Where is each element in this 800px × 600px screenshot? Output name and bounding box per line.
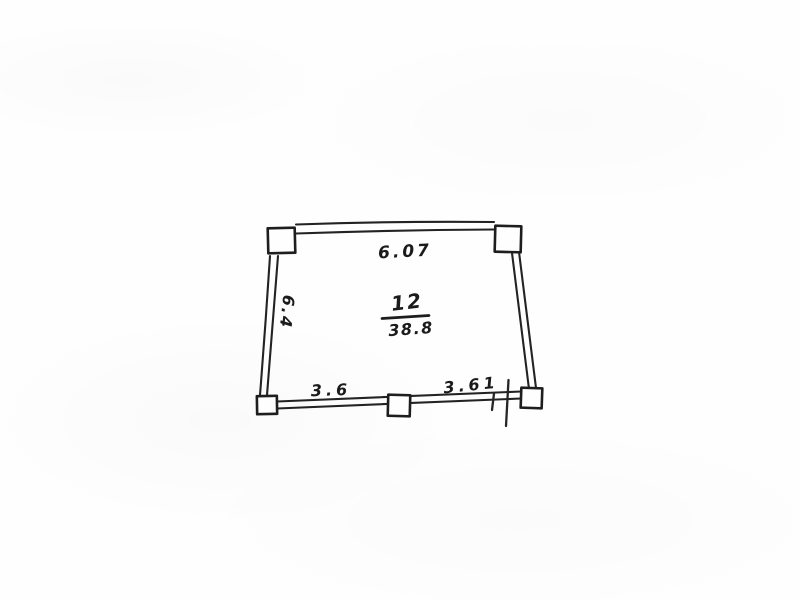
dimension-tick-major: [506, 380, 509, 426]
column-bottom-right: [521, 388, 543, 409]
wall-top-inner-line: [296, 230, 494, 234]
wall-top-outer-line: [296, 222, 494, 225]
column-top-right: [495, 226, 522, 253]
column-bottom-left: [257, 396, 277, 414]
top-wall-dimension-label: 6.07: [378, 241, 433, 264]
room-area-label: 38.8: [388, 318, 435, 340]
left-wall-dimension-label: 6.4: [276, 294, 298, 330]
column-top-left: [268, 228, 296, 254]
wall-right: [512, 252, 536, 389]
wall-right-outer-line: [519, 252, 536, 388]
room-number-label: 12: [390, 288, 425, 316]
wall-top: [296, 222, 494, 234]
bottom-left-dimension-label: 3.6: [311, 380, 352, 400]
column-bottom-middle: [388, 395, 411, 417]
scanned-floor-plan-page: 6.07 6.4 12 38.8 3.6 3.61: [0, 0, 800, 600]
dimension-tick-minor: [492, 394, 494, 411]
wall-right-inner-line: [512, 253, 529, 389]
